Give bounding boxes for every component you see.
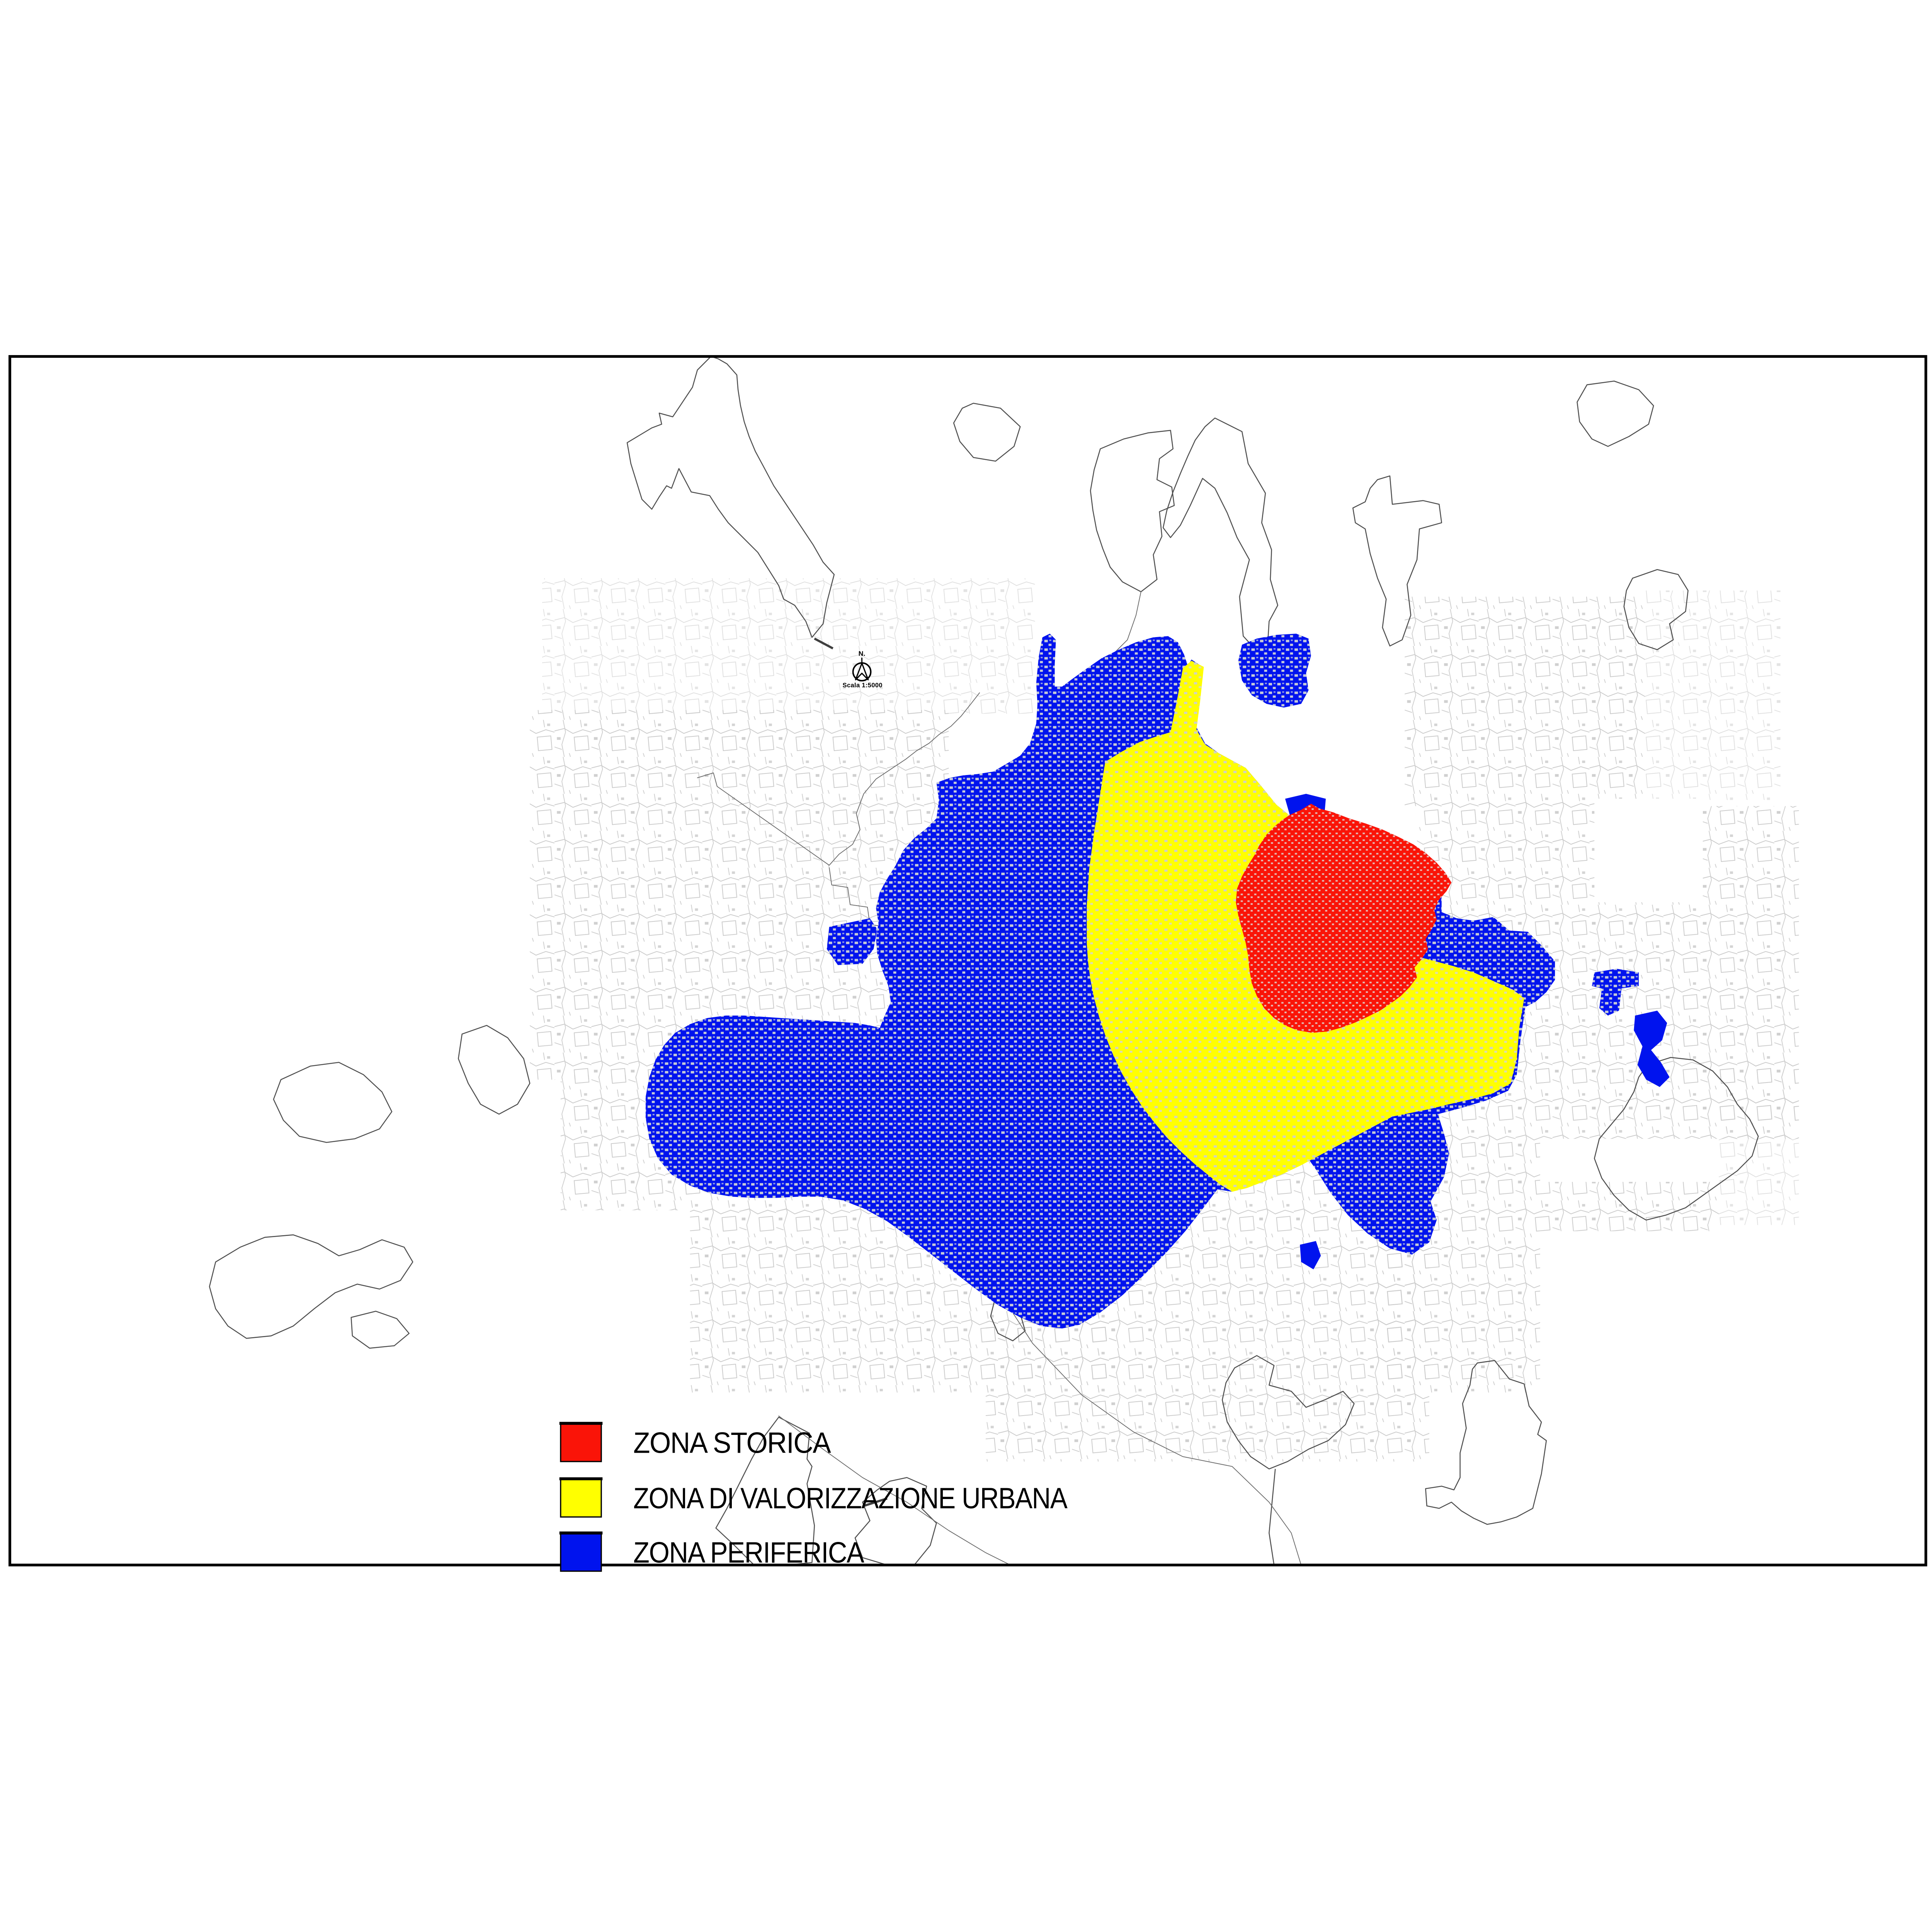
north-label: N. (859, 649, 866, 657)
legend-swatch-zona-valorizzazione (561, 1479, 601, 1517)
legend-swatch-zona-periferica (561, 1533, 601, 1571)
legend-label-zona-storica: ZONA STORICA (633, 1427, 831, 1460)
texture-sheet-northwest (542, 578, 1035, 714)
legend-label-zona-valorizzazione: ZONA DI VALORIZZAZIONE URBANA (633, 1482, 1068, 1515)
texture-sheet-east-lower (1719, 1065, 1799, 1225)
legend-swatch-zona-storica (561, 1423, 601, 1462)
texture-sheet-far-northeast (1645, 590, 1781, 800)
legend-label-zona-periferica: ZONA PERIFERICA (633, 1536, 864, 1569)
texture-gap-white (1594, 799, 1703, 902)
texture-sheet-northeast (1405, 597, 1645, 806)
scale-label: Scala 1:5000 (842, 682, 882, 689)
texture-sheet-southeast (1540, 1182, 1719, 1231)
plan-sheet: N. Scala 1:5000 ZONA STORICA ZONA DI VAL… (0, 0, 1932, 1919)
zoning-map-canvas: N. Scala 1:5000 ZONA STORICA ZONA DI VAL… (0, 0, 1932, 1919)
